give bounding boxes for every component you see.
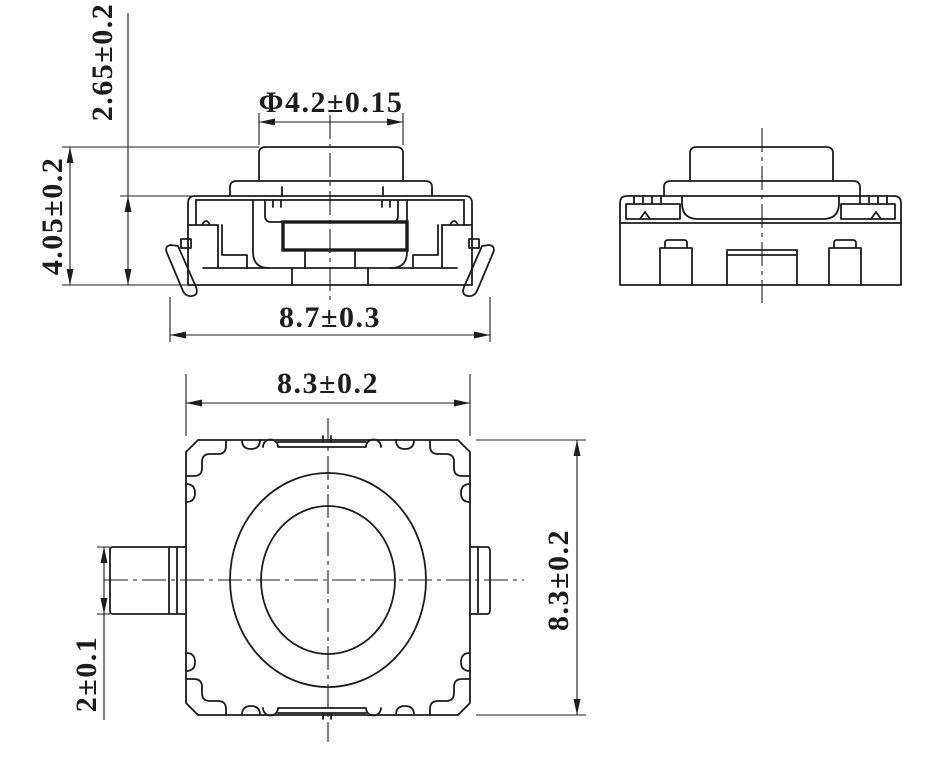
front-extension-lines [62, 147, 259, 285]
side-dome-outline [682, 196, 839, 219]
top-corner-detail-br [396, 653, 470, 715]
front-plunger-outline [265, 200, 398, 222]
side-cover-band-left [626, 204, 680, 219]
top-edge-tab-bottom [263, 708, 381, 719]
front-flange-outline [230, 181, 432, 196]
dim-total-height-label: 4.05±0.2 [36, 157, 69, 275]
front-side-notch-right [469, 239, 479, 248]
top-edge-tab-top [263, 436, 381, 447]
corner-bump-edge [242, 706, 260, 715]
front-contact-disc [283, 222, 407, 250]
side-crimp-marks [640, 212, 881, 219]
dim-button-diameter-arrow-right [387, 119, 403, 126]
dim-body-height-arrow-bottom [125, 269, 132, 285]
dim-overall-width-arrow-left [170, 332, 186, 339]
corner-bump-edge [396, 706, 414, 715]
front-dimensions: 2.65±0.2 4.05±0.2 Φ4.2±0.15 8.7±0.3 [36, 3, 490, 342]
dim-body-height-label: 2.65±0.2 [86, 3, 119, 121]
dim-body-depth-label: 8.3±0.2 [542, 529, 575, 631]
front-button-outline [259, 147, 403, 181]
corner-bump-side [186, 484, 195, 502]
edge-tab-lines [263, 708, 381, 719]
corner-bump-side [461, 653, 470, 671]
corner-bump-edge [396, 440, 414, 449]
dim-body-width-arrow-right [454, 400, 470, 407]
edge-tab-lines [263, 436, 381, 447]
dim-body-height-arrow-top [125, 196, 132, 212]
dim-body-depth-arrow-bottom [574, 699, 581, 715]
side-leg-right [829, 240, 861, 285]
corner-bump-edge [242, 440, 260, 449]
side-view [620, 128, 901, 303]
dim-body-width-label: 8.3±0.2 [277, 367, 379, 400]
side-leg-left [660, 240, 692, 285]
side-body-outline [620, 223, 901, 285]
front-flange-ticks [282, 187, 383, 196]
front-terminal-leg-right [463, 245, 494, 296]
dim-button-diameter-label: Φ4.2±0.15 [259, 86, 404, 119]
dim-overall-width-label: 8.7±0.3 [279, 301, 381, 334]
side-cover-crimp-ticks [634, 196, 887, 204]
dim-body-depth-arrow-top [574, 440, 581, 456]
tact-switch-drawing: 2.65±0.2 4.05±0.2 Φ4.2±0.15 8.7±0.3 [0, 0, 950, 765]
dim-body-width-arrow-left [186, 400, 202, 407]
front-plunger-ticks [273, 200, 390, 207]
top-corner-detail-tl [186, 440, 260, 502]
dim-button-diameter-arrow-left [259, 119, 275, 126]
side-cover-band-right [841, 204, 895, 219]
technical-drawing-page: 2.65±0.2 4.05±0.2 Φ4.2±0.15 8.7±0.3 [0, 0, 950, 765]
top-corner-detail-bl [186, 653, 260, 715]
top-view [104, 418, 524, 742]
dim-terminal-width-arrow-bottom [101, 598, 108, 614]
dim-overall-width-arrow-right [474, 332, 490, 339]
corner-bump-side [186, 653, 195, 671]
front-terminal-leg-left [166, 245, 197, 296]
front-side-notch-left [181, 239, 191, 248]
corner-bump-side [461, 484, 470, 502]
top-corner-detail-tr [396, 440, 470, 502]
dim-terminal-width-arrow-top [101, 547, 108, 563]
dim-terminal-width-label: 2±0.1 [70, 636, 103, 712]
front-view [166, 115, 494, 300]
